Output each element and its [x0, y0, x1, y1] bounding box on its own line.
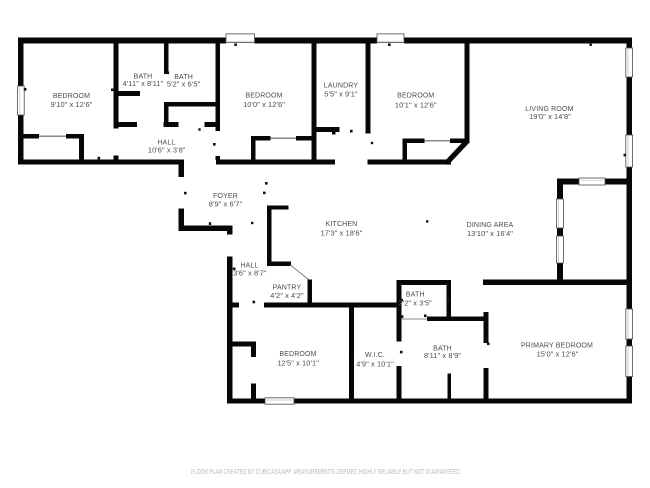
svg-text:15'0" x 12'6": 15'0" x 12'6": [537, 350, 579, 359]
svg-text:4'11" x 8'11": 4'11" x 8'11": [123, 79, 164, 88]
svg-text:10'0" x 12'6": 10'0" x 12'6": [243, 100, 285, 109]
svg-text:9'10" x 12'6": 9'10" x 12'6": [51, 100, 93, 109]
svg-text:3'6" x 8'7": 3'6" x 8'7": [233, 269, 267, 278]
svg-text:13'10" x 16'4": 13'10" x 16'4": [467, 229, 513, 238]
svg-text:4'2" x 4'2": 4'2" x 4'2": [270, 291, 304, 300]
svg-text:10'1" x 12'6": 10'1" x 12'6": [395, 100, 437, 109]
svg-text:BEDROOM: BEDROOM: [397, 93, 434, 100]
svg-text:BEDROOM: BEDROOM: [279, 351, 316, 358]
svg-text:BEDROOM: BEDROOM: [245, 92, 282, 99]
svg-text:LAUNDRY: LAUNDRY: [324, 82, 359, 89]
svg-text:8'11" x 8'9": 8'11" x 8'9": [424, 351, 461, 360]
svg-text:PRIMARY BEDROOM: PRIMARY BEDROOM: [521, 342, 593, 349]
svg-text:5'2" x 6'5": 5'2" x 6'5": [167, 79, 201, 88]
svg-text:8'9" x 6'7": 8'9" x 6'7": [209, 200, 243, 209]
svg-text:19'0" x 14'8": 19'0" x 14'8": [529, 112, 571, 121]
svg-text:5'5" x 9'1": 5'5" x 9'1": [324, 90, 358, 99]
svg-text:17'3" x 18'6": 17'3" x 18'6": [321, 228, 363, 237]
svg-text:4'9" x 10'1": 4'9" x 10'1": [356, 360, 394, 369]
svg-text:W.I.C.: W.I.C.: [365, 352, 385, 359]
svg-text:BATH: BATH: [406, 292, 425, 299]
svg-text:2'2" x 3'5": 2'2" x 3'5": [398, 299, 432, 308]
svg-text:BEDROOM: BEDROOM: [53, 93, 90, 100]
svg-text:10'6" x 3'8": 10'6" x 3'8": [148, 145, 186, 154]
svg-text:DINING AREA: DINING AREA: [467, 222, 514, 229]
svg-text:KITCHEN: KITCHEN: [326, 221, 358, 228]
svg-text:12'5" x 10'1": 12'5" x 10'1": [277, 358, 319, 367]
svg-text:FLOOR PLAN CREATED BY CUBICASA: FLOOR PLAN CREATED BY CUBICASA APP. MEAS…: [191, 468, 461, 476]
